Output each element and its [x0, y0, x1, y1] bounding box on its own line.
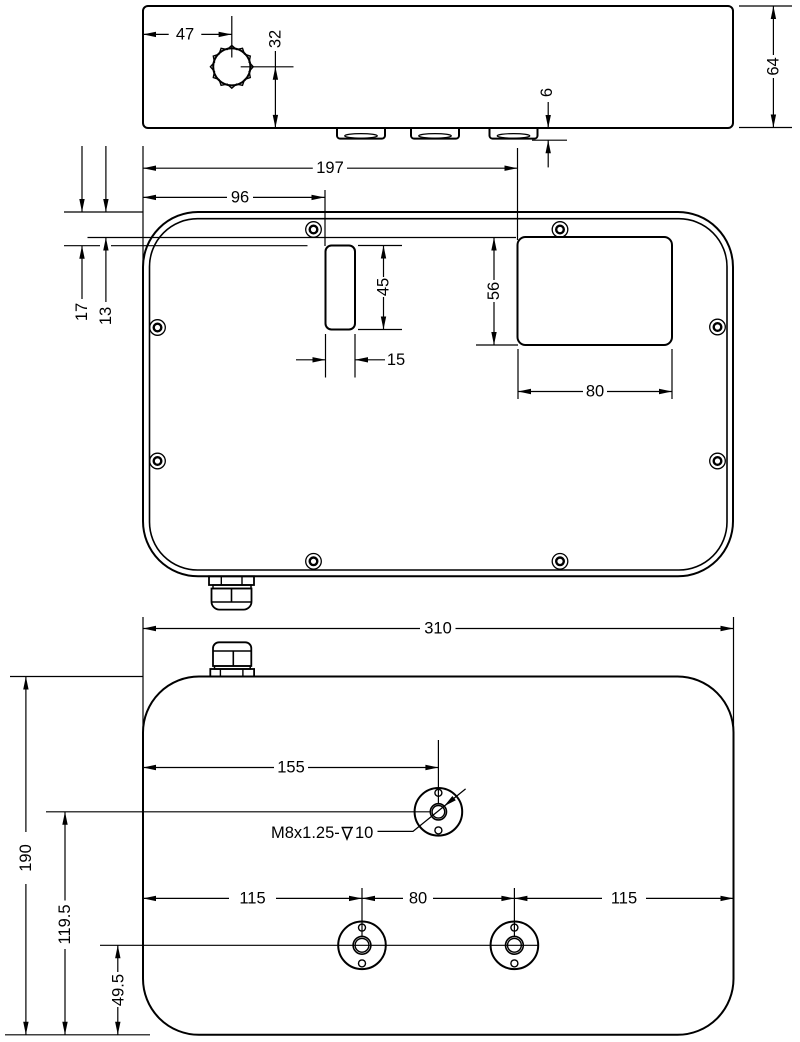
- svg-text:80: 80: [586, 383, 604, 401]
- svg-text:197: 197: [316, 159, 344, 177]
- svg-text:6: 6: [538, 88, 556, 97]
- svg-text:119.5: 119.5: [56, 904, 74, 944]
- svg-text:45: 45: [375, 278, 393, 296]
- svg-text:96: 96: [231, 188, 249, 206]
- svg-text:10: 10: [355, 824, 373, 842]
- svg-text:115: 115: [239, 889, 265, 907]
- svg-text:115: 115: [611, 889, 637, 907]
- svg-text:49.5: 49.5: [109, 974, 127, 1006]
- svg-text:155: 155: [277, 759, 305, 777]
- svg-text:17: 17: [73, 303, 91, 321]
- svg-text:190: 190: [17, 844, 35, 872]
- svg-text:32: 32: [266, 30, 284, 48]
- svg-text:47: 47: [176, 25, 194, 43]
- svg-text:56: 56: [485, 282, 503, 300]
- svg-text:15: 15: [387, 351, 405, 369]
- svg-text:310: 310: [424, 620, 452, 638]
- svg-text:80: 80: [409, 889, 427, 907]
- svg-text:64: 64: [764, 57, 782, 75]
- svg-text:M8x1.25-: M8x1.25-: [271, 824, 340, 842]
- svg-text:13: 13: [97, 307, 115, 325]
